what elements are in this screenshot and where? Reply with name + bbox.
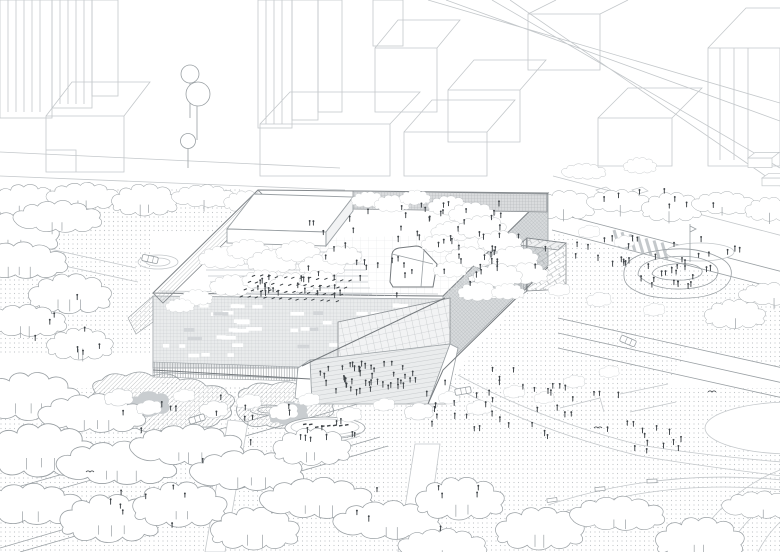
person-head (352, 227, 354, 229)
person-head (77, 346, 79, 348)
facade-window (201, 353, 210, 357)
person-head (365, 264, 367, 266)
person-head (564, 385, 566, 387)
city-block-group-left (0, 0, 150, 172)
facade-window (232, 343, 243, 347)
lollipop-trees (181, 65, 211, 168)
person-head (397, 378, 399, 380)
person-head (490, 252, 492, 254)
person-head (391, 361, 393, 363)
person-head (364, 259, 366, 261)
person-head (673, 439, 675, 441)
person-head (534, 263, 536, 265)
person-head (354, 432, 356, 434)
person-head (202, 458, 204, 460)
person-head (587, 244, 589, 246)
person-head (364, 363, 366, 365)
person-head (460, 258, 462, 260)
person-head (640, 275, 642, 277)
facade-window (163, 344, 169, 348)
person-head (323, 373, 325, 375)
person-head (634, 445, 636, 447)
facade-window (179, 344, 185, 348)
person-head (453, 400, 455, 402)
person-head (351, 431, 353, 433)
person-head (356, 260, 358, 262)
city-slab (258, 0, 292, 128)
person-head (484, 254, 486, 256)
person-head (340, 418, 342, 420)
kiosk-structures (748, 152, 780, 185)
person-head (603, 196, 605, 198)
kiosk (748, 152, 779, 167)
person-head (556, 404, 558, 406)
person-head (351, 378, 353, 380)
person-head (170, 405, 172, 407)
person-head (547, 388, 549, 390)
person-head (493, 249, 495, 251)
person-head (671, 267, 673, 269)
person-head (358, 366, 360, 368)
person-head (690, 281, 692, 283)
person-head (639, 189, 641, 191)
person-head (327, 366, 329, 368)
person-head (369, 386, 371, 388)
bench (647, 479, 657, 483)
facade-window (252, 305, 262, 309)
person-head (508, 422, 510, 424)
person-head (559, 383, 561, 385)
person-head (288, 404, 290, 406)
person-head (53, 312, 55, 314)
person-head (119, 503, 121, 505)
person-head (377, 262, 379, 264)
city-box (448, 60, 546, 142)
person-head (352, 361, 354, 363)
crosswalk-stripe (638, 236, 643, 253)
person-head (436, 413, 438, 415)
person-head (522, 384, 524, 386)
person-head (356, 510, 358, 512)
person-head (354, 365, 356, 367)
person-head (739, 247, 741, 249)
person-head (356, 389, 358, 391)
person-head (390, 382, 392, 384)
person-head (326, 434, 328, 436)
person-head (552, 383, 554, 385)
person-head (623, 258, 625, 260)
person-head (491, 258, 493, 260)
person-head (663, 188, 665, 190)
person-head (451, 238, 453, 240)
person-head (684, 259, 686, 261)
person-head (473, 426, 475, 428)
person-head (49, 319, 51, 321)
person-head (303, 276, 305, 278)
person-head (656, 425, 658, 427)
person-head (479, 425, 481, 427)
shrub (578, 225, 600, 238)
person-head (325, 254, 327, 256)
person-head (391, 257, 393, 259)
person-head (626, 420, 628, 422)
lollipop-tree (186, 82, 210, 106)
person-head (382, 381, 384, 383)
person-head (175, 405, 177, 407)
person-head (120, 490, 122, 492)
person-head (492, 367, 494, 369)
person-head (575, 253, 577, 255)
person-head (334, 292, 336, 294)
facade-window (188, 354, 199, 358)
person-head (443, 202, 445, 204)
person-head (405, 212, 407, 214)
person-head (321, 425, 323, 427)
facade-window (290, 329, 298, 333)
person-head (365, 380, 367, 382)
person-head (84, 327, 86, 329)
person-head (628, 257, 630, 259)
person-head (349, 216, 351, 218)
person-head (513, 367, 515, 369)
person-head (518, 233, 520, 235)
facade-window (231, 304, 239, 308)
stage-mark (315, 427, 319, 428)
person-head (418, 234, 420, 236)
person-head (400, 379, 402, 381)
person-head (673, 242, 675, 244)
person-head (618, 192, 620, 194)
facade-window (298, 345, 310, 349)
person-head (346, 383, 348, 385)
person-head (268, 287, 270, 289)
city-block-group-middle (258, 0, 546, 176)
person-head (478, 231, 480, 233)
person-head (316, 290, 318, 292)
city-slab (52, 0, 92, 108)
person-head (110, 498, 112, 500)
person-head (411, 269, 413, 271)
person-head (339, 289, 341, 291)
person-head (383, 361, 385, 363)
person-head (424, 207, 426, 209)
person-head (603, 237, 605, 239)
person-head (335, 388, 337, 390)
tree-canopy (623, 158, 656, 174)
kiosk-front (748, 158, 772, 168)
facade-window (228, 353, 234, 357)
person-head (680, 436, 682, 438)
facade-window (233, 329, 249, 333)
person-head (676, 264, 678, 266)
person-head (632, 235, 634, 237)
context-street-lines (0, 152, 345, 190)
tree-canopy (561, 163, 605, 179)
person-head (547, 434, 549, 436)
person-head (333, 275, 335, 277)
person-head (409, 377, 411, 379)
person-head (448, 201, 450, 203)
city-slab (373, 0, 403, 46)
facade-window (329, 343, 338, 347)
person-head (397, 236, 399, 238)
person-head (414, 377, 416, 379)
person-head (122, 509, 124, 511)
person-head (334, 284, 336, 286)
person-head (268, 274, 270, 276)
person-head (396, 292, 398, 294)
person-head (496, 265, 498, 267)
person-head (623, 261, 625, 263)
person-head (272, 287, 274, 289)
person-head (412, 371, 414, 373)
lollipop-tree (181, 134, 196, 149)
lollipop-tree (181, 65, 199, 83)
person-head (476, 392, 478, 394)
person-head (479, 264, 481, 266)
person-head (612, 260, 614, 262)
person-head (325, 380, 327, 382)
person-head (494, 246, 496, 248)
person-head (359, 388, 361, 390)
person-head (349, 362, 351, 364)
facade-window (217, 335, 226, 339)
stage-mark (303, 424, 307, 425)
person-head (307, 265, 309, 267)
person-head (500, 212, 502, 214)
person-head (350, 386, 352, 388)
person-head (544, 430, 546, 432)
person-head (485, 401, 487, 403)
stage-mark (309, 424, 313, 425)
person-head (708, 251, 710, 253)
stage-mark (327, 425, 331, 426)
person-head (377, 378, 379, 380)
person-head (82, 350, 84, 352)
axonometric-site-plan: Axonometric architectural site drawing (0, 0, 780, 552)
person-head (498, 379, 500, 381)
person-head (361, 361, 363, 363)
person-head (734, 245, 736, 247)
person-head (359, 275, 361, 277)
person-head (692, 274, 694, 276)
stage-mark (345, 425, 349, 426)
person-head (426, 391, 428, 393)
person-head (122, 410, 124, 412)
person-head (322, 230, 324, 232)
person-head (220, 394, 222, 396)
person-head (646, 440, 648, 442)
person-head (244, 416, 246, 418)
person-head (312, 220, 314, 222)
person-head (700, 236, 702, 238)
person-head (310, 437, 312, 439)
person-head (336, 420, 338, 422)
person-head (402, 382, 404, 384)
person-head (434, 406, 436, 408)
person-head (673, 279, 675, 281)
person-head (698, 253, 700, 255)
facade-window (213, 312, 228, 316)
person-head (438, 485, 440, 487)
person-head (536, 407, 538, 409)
person-head (171, 522, 173, 524)
person-head (359, 370, 361, 372)
person-head (252, 415, 254, 417)
person-head (397, 256, 399, 258)
person-head (344, 242, 346, 244)
person-head (319, 370, 321, 372)
person-head (443, 268, 445, 270)
person-head (401, 205, 403, 207)
person-head (442, 209, 444, 211)
person-head (491, 410, 493, 412)
city-box (260, 92, 420, 176)
facade-window (393, 303, 399, 307)
person-head (496, 258, 498, 260)
person-head (370, 379, 372, 381)
person-head (306, 427, 308, 429)
person-head (498, 200, 500, 202)
person-head (297, 282, 299, 284)
person-head (172, 484, 174, 486)
person-head (319, 285, 321, 287)
person-head (454, 413, 456, 415)
person-head (308, 277, 310, 279)
person-head (250, 439, 252, 441)
person-head (304, 288, 306, 290)
city-box (404, 100, 515, 176)
person-head (686, 202, 688, 204)
person-head (611, 235, 613, 237)
person-head (706, 266, 708, 268)
person-head (628, 243, 630, 245)
person-head (318, 271, 320, 273)
person-head (477, 485, 479, 487)
person-head (647, 263, 649, 265)
person-head (709, 265, 711, 267)
person-head (416, 231, 418, 233)
person-head (597, 255, 599, 257)
person-head (457, 226, 459, 228)
kiosk-roof (748, 152, 779, 158)
person-head (404, 272, 406, 274)
person-head (333, 246, 335, 248)
bench (595, 487, 605, 492)
person-head (76, 294, 78, 296)
person-head (420, 202, 422, 204)
person-head (257, 285, 259, 287)
person-head (184, 493, 186, 495)
city-block-group-right (528, 0, 780, 166)
person-head (341, 365, 343, 367)
facade-window (188, 337, 202, 341)
person-head (669, 428, 671, 430)
person-head (483, 233, 485, 235)
person-head (444, 380, 446, 382)
person-head (607, 426, 609, 428)
person-head (653, 277, 655, 279)
person-head (429, 215, 431, 217)
facade-window (310, 327, 319, 331)
person-head (140, 427, 142, 429)
person-head (34, 335, 36, 337)
person-head (368, 515, 370, 517)
person-head (625, 260, 627, 262)
city-box (375, 20, 460, 112)
person-head (687, 283, 689, 285)
person-head (300, 434, 302, 436)
person-head (368, 381, 370, 383)
person-head (636, 236, 638, 238)
kiosk-roof (762, 173, 780, 178)
person-head (488, 389, 490, 391)
person-head (300, 275, 302, 277)
person-head (663, 442, 665, 444)
tree-row-north-east (534, 158, 780, 225)
person-head (371, 373, 373, 375)
play-flag (690, 226, 696, 232)
stage-mark (339, 425, 343, 426)
person-head (493, 210, 495, 212)
person-head (376, 487, 378, 489)
person-head (373, 367, 375, 369)
architectural-drawing: Axonometric architectural site drawing (0, 0, 780, 552)
person-head (443, 239, 445, 241)
person-head (661, 270, 663, 272)
person-head (438, 242, 440, 244)
person-head (393, 372, 395, 374)
city-slab (292, 0, 318, 120)
person-head (599, 391, 601, 393)
person-head (387, 385, 389, 387)
person-head (620, 256, 622, 258)
person-head (712, 202, 714, 204)
facade-lines (266, 0, 282, 124)
facade-lines (60, 0, 84, 104)
person-head (499, 416, 501, 418)
person-head (458, 253, 460, 255)
facade-window (184, 328, 195, 332)
person-head (403, 262, 405, 264)
facade-window (323, 321, 332, 325)
person-head (533, 387, 535, 389)
person-head (492, 397, 494, 399)
person-head (431, 421, 433, 423)
person-head (440, 525, 442, 527)
person-head (677, 445, 679, 447)
person-head (564, 411, 566, 413)
person-head (441, 493, 443, 495)
person-head (304, 434, 306, 436)
person-head (668, 203, 670, 205)
person-head (215, 411, 217, 413)
person-head (367, 208, 369, 210)
person-head (684, 265, 686, 267)
person-head (469, 281, 471, 283)
person-head (458, 245, 460, 247)
person-head (440, 210, 442, 212)
person-head (260, 290, 262, 292)
person-head (264, 285, 266, 287)
person-head (674, 196, 676, 198)
person-head (402, 365, 404, 367)
person-head (632, 421, 634, 423)
person-head (476, 492, 478, 494)
person-head (593, 391, 595, 393)
person-head (466, 414, 468, 416)
person-head (617, 392, 619, 394)
